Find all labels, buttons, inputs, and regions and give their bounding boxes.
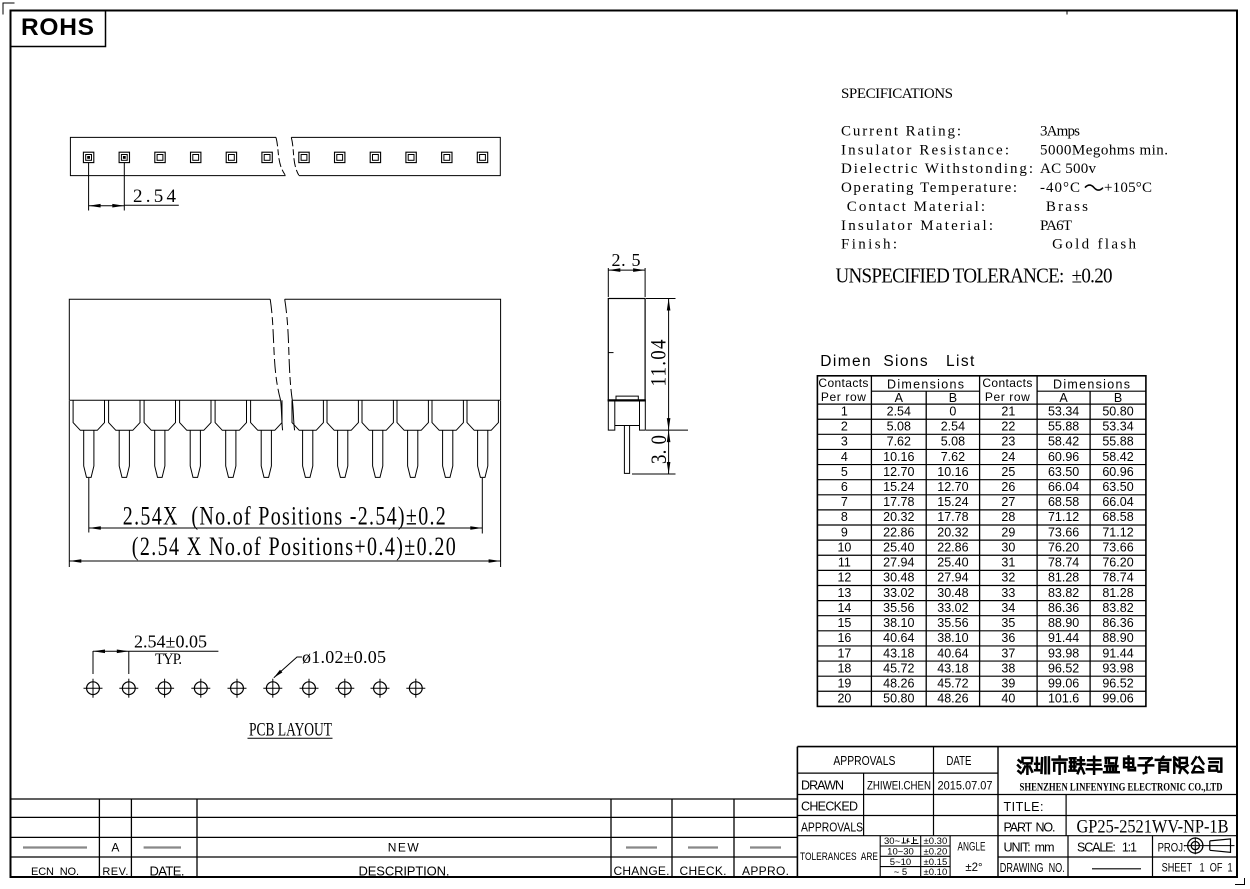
svg-text:71.12: 71.12 bbox=[1102, 525, 1133, 539]
svg-text:22.86: 22.86 bbox=[883, 525, 914, 539]
svg-text:12.70: 12.70 bbox=[937, 480, 968, 494]
svg-text:Contacts: Contacts bbox=[982, 376, 1032, 390]
svg-text:5: 5 bbox=[841, 465, 848, 479]
svg-text:21: 21 bbox=[1001, 404, 1015, 418]
svg-text:20: 20 bbox=[837, 692, 851, 706]
svg-text:18: 18 bbox=[837, 661, 851, 675]
svg-text:APPROVALS: APPROVALS bbox=[833, 754, 895, 768]
svg-text:9: 9 bbox=[841, 525, 848, 539]
svg-text:7.62: 7.62 bbox=[887, 435, 911, 449]
svg-text:-40°C: -40°C bbox=[1040, 180, 1080, 196]
svg-text:83.82: 83.82 bbox=[1048, 586, 1079, 600]
svg-text:5000Megohms min.: 5000Megohms min. bbox=[1040, 142, 1168, 158]
svg-text:Gold flash: Gold flash bbox=[1040, 237, 1137, 253]
svg-text:30: 30 bbox=[1001, 540, 1015, 554]
svg-text:12.70: 12.70 bbox=[883, 465, 914, 479]
svg-text:APPROVALS: APPROVALS bbox=[801, 821, 863, 835]
svg-text:CHANGE.: CHANGE. bbox=[614, 864, 670, 878]
svg-text:88.90: 88.90 bbox=[1048, 616, 1079, 630]
svg-text:38: 38 bbox=[1001, 661, 1015, 675]
svg-text:B: B bbox=[1114, 391, 1122, 405]
svg-text:20.32: 20.32 bbox=[883, 510, 914, 524]
svg-text:±2°: ±2° bbox=[965, 862, 982, 874]
svg-text:10.16: 10.16 bbox=[937, 465, 968, 479]
svg-text:TITLE:: TITLE: bbox=[1004, 800, 1044, 814]
svg-text:A: A bbox=[1059, 391, 1068, 405]
svg-text:ZHIWEI.CHEN: ZHIWEI.CHEN bbox=[867, 779, 931, 793]
svg-text:NEW: NEW bbox=[388, 841, 421, 855]
svg-text:7.62: 7.62 bbox=[941, 450, 965, 464]
svg-text:34: 34 bbox=[1001, 601, 1015, 615]
svg-text:20.32: 20.32 bbox=[937, 525, 968, 539]
svg-text:2.54±0.05: 2.54±0.05 bbox=[134, 632, 207, 652]
svg-text:36: 36 bbox=[1001, 631, 1015, 645]
svg-text:APPRO.: APPRO. bbox=[742, 864, 789, 878]
svg-text:86.36: 86.36 bbox=[1102, 616, 1133, 630]
svg-text:53.34: 53.34 bbox=[1048, 404, 1079, 418]
svg-text:28: 28 bbox=[1001, 510, 1015, 524]
svg-text:30.48: 30.48 bbox=[883, 571, 914, 585]
svg-text:45.72: 45.72 bbox=[883, 661, 914, 675]
svg-text:SHENZHEN LINFENYING ELECTRONIC: SHENZHEN LINFENYING ELECTRONIC CO.,LTD bbox=[1020, 780, 1223, 794]
svg-text:68.58: 68.58 bbox=[1048, 495, 1079, 509]
svg-text:12: 12 bbox=[837, 571, 851, 585]
svg-text:14: 14 bbox=[837, 601, 851, 615]
svg-text:15.24: 15.24 bbox=[937, 495, 968, 509]
svg-text:3. 0: 3. 0 bbox=[648, 435, 671, 464]
svg-text:17.78: 17.78 bbox=[937, 510, 968, 524]
svg-text:48.26: 48.26 bbox=[937, 692, 968, 706]
svg-text:71.12: 71.12 bbox=[1048, 510, 1079, 524]
svg-text:23: 23 bbox=[1001, 435, 1015, 449]
svg-text:CHECK.: CHECK. bbox=[680, 864, 727, 878]
svg-text:40.64: 40.64 bbox=[937, 646, 968, 660]
svg-text:DRAWN: DRAWN bbox=[801, 779, 844, 793]
svg-text:55.88: 55.88 bbox=[1048, 420, 1079, 434]
svg-text:91.44: 91.44 bbox=[1102, 646, 1133, 660]
svg-text:2.54: 2.54 bbox=[133, 186, 177, 207]
svg-text:DRAWING NO.: DRAWING NO. bbox=[1000, 861, 1065, 875]
svg-text:86.36: 86.36 bbox=[1048, 601, 1079, 615]
svg-text:PA6T: PA6T bbox=[1040, 218, 1072, 234]
svg-text:SCALE: 1:1: SCALE: 1:1 bbox=[1077, 841, 1137, 855]
svg-text:2.54: 2.54 bbox=[887, 404, 911, 418]
svg-text:25.40: 25.40 bbox=[883, 540, 914, 554]
svg-text:73.66: 73.66 bbox=[1048, 525, 1079, 539]
svg-text:Dielectric Withstonding:: Dielectric Withstonding: bbox=[841, 161, 1033, 177]
svg-text:78.74: 78.74 bbox=[1102, 571, 1133, 585]
svg-text:2: 2 bbox=[841, 420, 848, 434]
svg-text:50.80: 50.80 bbox=[1102, 404, 1133, 418]
svg-text:43.18: 43.18 bbox=[937, 661, 968, 675]
svg-text:101.6: 101.6 bbox=[1048, 692, 1079, 706]
svg-text:1: 1 bbox=[841, 404, 848, 418]
svg-text:B: B bbox=[949, 391, 957, 405]
svg-text:93.98: 93.98 bbox=[1048, 646, 1079, 660]
svg-text:33: 33 bbox=[1001, 586, 1015, 600]
svg-text:40: 40 bbox=[1001, 692, 1015, 706]
svg-text:37: 37 bbox=[1001, 646, 1015, 660]
svg-text:4: 4 bbox=[841, 450, 848, 464]
svg-text:ROHS: ROHS bbox=[21, 14, 94, 41]
svg-text:58.42: 58.42 bbox=[1048, 435, 1079, 449]
svg-text:76.20: 76.20 bbox=[1102, 556, 1133, 570]
svg-text:±0.10: ±0.10 bbox=[924, 867, 948, 878]
svg-text:40.64: 40.64 bbox=[883, 631, 914, 645]
svg-text:Dimen Sions List: Dimen Sions List bbox=[820, 353, 975, 370]
svg-text:3: 3 bbox=[841, 435, 848, 449]
svg-text:17: 17 bbox=[837, 646, 851, 660]
svg-text:91.44: 91.44 bbox=[1048, 631, 1079, 645]
svg-text:22: 22 bbox=[1001, 420, 1015, 434]
svg-text:93.98: 93.98 bbox=[1102, 661, 1133, 675]
svg-text:53.34: 53.34 bbox=[1102, 420, 1133, 434]
svg-text:50.80: 50.80 bbox=[883, 692, 914, 706]
svg-text:25: 25 bbox=[1001, 465, 1015, 479]
svg-text:33.02: 33.02 bbox=[883, 586, 914, 600]
svg-text:58.42: 58.42 bbox=[1102, 450, 1133, 464]
svg-text:TOLERANCES ARE: TOLERANCES ARE bbox=[800, 851, 878, 863]
svg-text:Per row: Per row bbox=[985, 390, 1030, 404]
svg-text:SPECIFICATIONS: SPECIFICATIONS bbox=[841, 86, 953, 102]
svg-text:66.04: 66.04 bbox=[1048, 480, 1079, 494]
svg-text:39: 39 bbox=[1001, 676, 1015, 690]
svg-text:96.52: 96.52 bbox=[1048, 661, 1079, 675]
svg-text:5.08: 5.08 bbox=[941, 435, 965, 449]
svg-text:45.72: 45.72 bbox=[937, 676, 968, 690]
svg-text:27.94: 27.94 bbox=[883, 556, 914, 570]
svg-text:CHECKED: CHECKED bbox=[801, 800, 858, 814]
svg-text:15.24: 15.24 bbox=[883, 480, 914, 494]
svg-text:3Amps: 3Amps bbox=[1040, 124, 1080, 140]
svg-text:73.66: 73.66 bbox=[1102, 540, 1133, 554]
svg-text:10: 10 bbox=[837, 540, 851, 554]
svg-text:27.94: 27.94 bbox=[937, 571, 968, 585]
svg-text:GP25-2521WV-NP-1B: GP25-2521WV-NP-1B bbox=[1077, 817, 1229, 838]
svg-text:Dimensions: Dimensions bbox=[1053, 378, 1130, 392]
svg-text:35.56: 35.56 bbox=[883, 601, 914, 615]
svg-text:31: 31 bbox=[1001, 556, 1015, 570]
svg-text:11.04: 11.04 bbox=[647, 340, 670, 387]
svg-text:Operating Temperature:: Operating Temperature: bbox=[841, 180, 1017, 196]
svg-text:30.48: 30.48 bbox=[937, 586, 968, 600]
svg-text:60.96: 60.96 bbox=[1048, 450, 1079, 464]
svg-text:29: 29 bbox=[1001, 525, 1015, 539]
svg-text:48.26: 48.26 bbox=[883, 676, 914, 690]
svg-text:11: 11 bbox=[838, 556, 851, 570]
svg-text:32: 32 bbox=[1001, 571, 1015, 585]
svg-text:38.10: 38.10 bbox=[937, 631, 968, 645]
svg-text:ANGLE: ANGLE bbox=[958, 842, 986, 854]
svg-text:99.06: 99.06 bbox=[1048, 676, 1079, 690]
svg-text:ø1.02±0.05: ø1.02±0.05 bbox=[302, 647, 386, 667]
svg-text:5.08: 5.08 bbox=[887, 420, 911, 434]
svg-text:2.54: 2.54 bbox=[941, 420, 965, 434]
svg-text:DESCRIPTION.: DESCRIPTION. bbox=[359, 864, 450, 879]
svg-text:24: 24 bbox=[1001, 450, 1015, 464]
svg-text:16: 16 bbox=[837, 631, 851, 645]
svg-text:96.52: 96.52 bbox=[1102, 676, 1133, 690]
svg-text:Per row: Per row bbox=[821, 390, 866, 404]
svg-text:55.88: 55.88 bbox=[1102, 435, 1133, 449]
svg-text:17.78: 17.78 bbox=[883, 495, 914, 509]
svg-text:ECN NO.: ECN NO. bbox=[31, 866, 79, 878]
svg-text:8: 8 bbox=[841, 510, 848, 524]
svg-text:2015.07.07: 2015.07.07 bbox=[938, 779, 993, 793]
svg-text:19: 19 bbox=[837, 676, 851, 690]
svg-text:DATE.: DATE. bbox=[150, 864, 185, 879]
svg-text:10.16: 10.16 bbox=[883, 450, 914, 464]
svg-text:REV.: REV. bbox=[102, 866, 128, 878]
svg-text:99.06: 99.06 bbox=[1102, 692, 1133, 706]
svg-text:Contacts: Contacts bbox=[818, 376, 868, 390]
svg-text:13: 13 bbox=[837, 586, 851, 600]
svg-text:63.50: 63.50 bbox=[1048, 465, 1079, 479]
svg-text:68.58: 68.58 bbox=[1102, 510, 1133, 524]
svg-text:60.96: 60.96 bbox=[1102, 465, 1133, 479]
svg-text:2.54X (No.of Positions -2.54): 2.54X (No.of Positions -2.54)±0.2 bbox=[123, 502, 446, 531]
svg-text:63.50: 63.50 bbox=[1102, 480, 1133, 494]
svg-text:76.20: 76.20 bbox=[1048, 540, 1079, 554]
svg-text:35.56: 35.56 bbox=[937, 616, 968, 630]
svg-text:22.86: 22.86 bbox=[937, 540, 968, 554]
svg-text:PROJ:: PROJ: bbox=[1158, 843, 1186, 855]
svg-text:15: 15 bbox=[837, 616, 851, 630]
svg-text:0: 0 bbox=[949, 404, 956, 418]
svg-text:7: 7 bbox=[841, 495, 848, 509]
svg-text:78.74: 78.74 bbox=[1048, 556, 1079, 570]
svg-text:26: 26 bbox=[1001, 480, 1015, 494]
svg-text:(2.54 X No.of Positions+0.4)±0: (2.54 X No.of Positions+0.4)±0.20 bbox=[132, 533, 456, 562]
svg-text:Dimensions: Dimensions bbox=[887, 378, 964, 392]
svg-text:66.04: 66.04 bbox=[1102, 495, 1133, 509]
svg-text:81.28: 81.28 bbox=[1102, 586, 1133, 600]
svg-text:DATE: DATE bbox=[946, 754, 971, 768]
svg-text:+105°C: +105°C bbox=[1104, 180, 1152, 196]
svg-text:PART NO.: PART NO. bbox=[1004, 821, 1056, 835]
svg-text:83.82: 83.82 bbox=[1102, 601, 1133, 615]
svg-text:27: 27 bbox=[1001, 495, 1015, 509]
svg-text:Contact Material:: Contact Material: bbox=[841, 199, 985, 215]
svg-text:6: 6 bbox=[841, 480, 848, 494]
svg-text:UNIT: mm: UNIT: mm bbox=[1004, 841, 1055, 855]
svg-text:A: A bbox=[111, 841, 119, 855]
svg-text:25.40: 25.40 bbox=[937, 556, 968, 570]
svg-text:81.28: 81.28 bbox=[1048, 571, 1079, 585]
svg-text:43.18: 43.18 bbox=[883, 646, 914, 660]
svg-text:AC 500v: AC 500v bbox=[1040, 161, 1097, 177]
svg-text:SHEET 1 OF 1: SHEET 1 OF 1 bbox=[1162, 863, 1233, 875]
svg-text:88.90: 88.90 bbox=[1102, 631, 1133, 645]
svg-text:Insulator Resistance:: Insulator Resistance: bbox=[841, 142, 1009, 158]
svg-text:Current Rating:: Current Rating: bbox=[841, 124, 961, 140]
svg-text:A: A bbox=[895, 391, 904, 405]
svg-text:2. 5: 2. 5 bbox=[612, 250, 641, 270]
svg-text:~ 5: ~ 5 bbox=[894, 867, 907, 878]
svg-text:33.02: 33.02 bbox=[937, 601, 968, 615]
svg-text:35: 35 bbox=[1001, 616, 1015, 630]
svg-text:PCB LAYOUT: PCB LAYOUT bbox=[249, 719, 332, 741]
svg-text:38.10: 38.10 bbox=[883, 616, 914, 630]
svg-text:TYP.: TYP. bbox=[155, 650, 182, 668]
svg-text:UNSPECIFIED TOLERANCE: ±0.20: UNSPECIFIED TOLERANCE: ±0.20 bbox=[836, 265, 1113, 288]
